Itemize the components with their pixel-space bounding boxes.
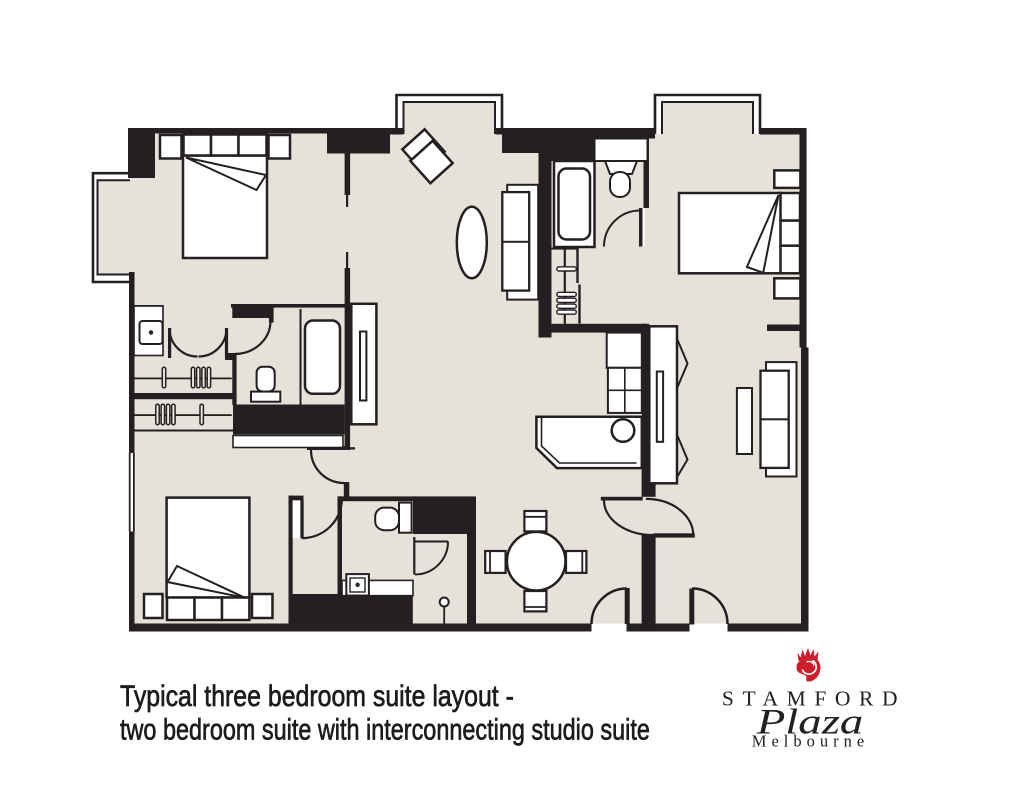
svg-text:Melbourne: Melbourne xyxy=(752,732,869,751)
svg-text:two bedroom suite with interco: two bedroom suite with interconnecting s… xyxy=(120,713,650,746)
svg-text:Typical three bedroom suite la: Typical three bedroom suite layout - xyxy=(120,679,514,713)
